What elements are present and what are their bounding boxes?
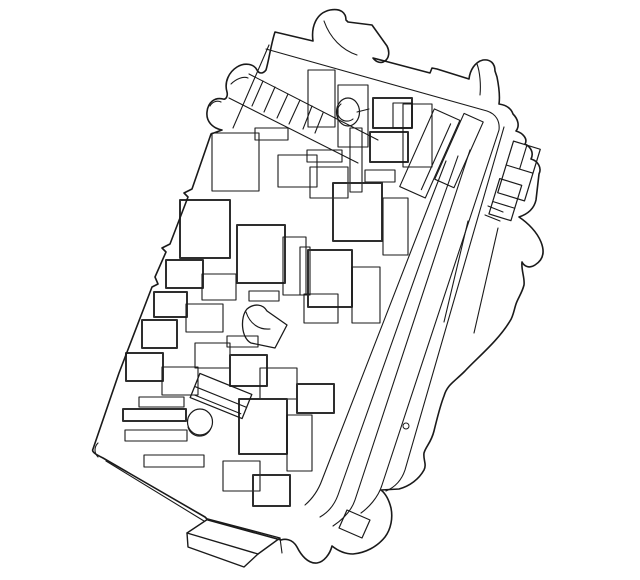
fuse-rect	[365, 170, 395, 182]
flange-band-line	[305, 161, 446, 505]
thumb-inner-arc	[231, 77, 248, 84]
relay-tilted-top-rect	[435, 113, 483, 187]
relay-tilted-bottom	[190, 373, 252, 418]
relay-tilted-bottom-line	[194, 395, 240, 414]
fuse-rect	[283, 237, 306, 295]
lug-face-line-b	[474, 228, 498, 333]
outer-silhouette	[93, 10, 543, 564]
flange-connector-upper	[498, 141, 541, 201]
hatch-layer	[229, 45, 378, 163]
fuse-rect	[338, 85, 368, 147]
fuse-rect	[230, 355, 267, 386]
flange-connector-lower-line	[493, 202, 515, 209]
fuse-rect	[255, 128, 288, 140]
right-tab-inner-line	[477, 64, 480, 95]
round-post	[337, 98, 360, 126]
fuse-rect	[308, 250, 352, 307]
flange-band-layer	[305, 127, 504, 526]
fuse-rect	[278, 155, 317, 187]
fuse-box-parts-diagram	[0, 0, 640, 580]
flange-connector-lower	[489, 179, 522, 221]
illustration-stage	[0, 0, 640, 580]
post-inner-arc	[337, 104, 353, 121]
fuse-rect	[212, 133, 259, 191]
mount-ring	[188, 409, 213, 435]
fuse-rect	[352, 267, 380, 323]
fuse-rect	[308, 70, 335, 127]
lug-face-line-a	[444, 221, 468, 322]
hatch-line	[277, 94, 288, 118]
fuse-rect	[227, 336, 258, 347]
fuse-rect	[125, 430, 187, 441]
blob-inner-curve	[246, 312, 270, 329]
fuse-rect	[202, 274, 236, 300]
fuse-rect	[154, 292, 187, 317]
fuse-rect	[297, 384, 334, 413]
fuse-rect	[237, 225, 285, 283]
flange-connector-upper-line	[520, 145, 527, 169]
flange-connector-lower-rect	[489, 179, 522, 221]
fuse-rect	[186, 304, 223, 332]
fuse-rect	[123, 409, 186, 421]
fuse-rect	[166, 260, 203, 288]
hatch-line	[252, 81, 263, 106]
flange-band-line	[333, 150, 470, 526]
fuse-rect	[180, 200, 230, 258]
latch-slot	[339, 510, 370, 538]
fuse-rect	[287, 415, 312, 471]
inner-top-rim	[266, 49, 499, 513]
tilted-parts-layer	[190, 102, 540, 419]
fuse-rect	[370, 132, 408, 162]
fuse-rect	[126, 353, 163, 381]
fuse-rect	[142, 320, 177, 348]
flange-connector-upper-rect	[498, 141, 541, 201]
fuse-rect	[304, 294, 338, 323]
bottom-wall-line	[106, 461, 204, 521]
outline-layer	[93, 10, 543, 564]
hatch-line	[264, 87, 275, 112]
fuse-rect	[249, 291, 279, 301]
fuse-rect	[139, 397, 184, 407]
lug-step-b	[485, 215, 500, 221]
fuse-rect	[383, 198, 408, 255]
fuse-rect	[260, 368, 297, 399]
latch-pin	[403, 423, 409, 429]
fuse-field-layer	[123, 70, 432, 506]
fuse-rect	[195, 343, 230, 368]
hatch-line	[289, 100, 300, 124]
hatch-line	[315, 113, 323, 133]
relay-tilted-bottom-rect	[190, 373, 252, 418]
top-tab-inner-arc	[324, 21, 357, 55]
fuse-rect	[144, 455, 204, 467]
foot-front-face	[187, 533, 258, 567]
blob-clip	[242, 305, 287, 348]
